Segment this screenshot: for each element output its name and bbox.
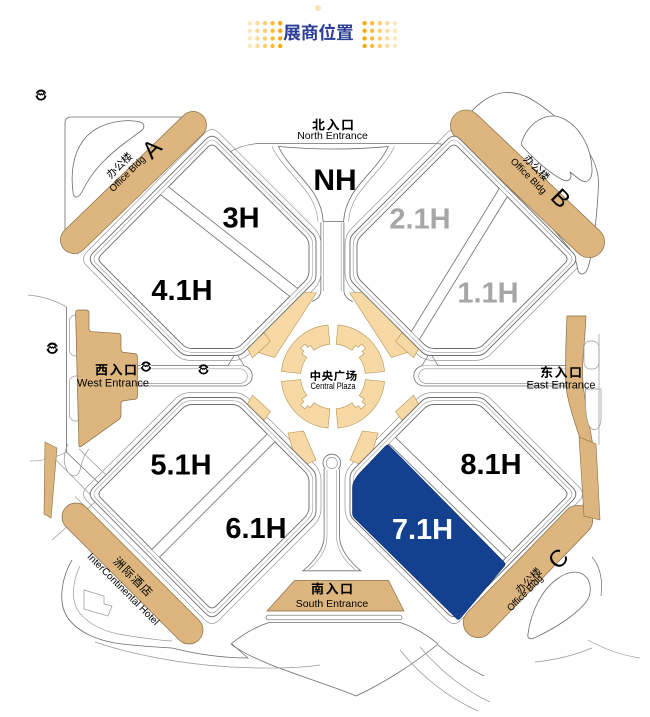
svg-text:8.1H: 8.1H: [460, 449, 521, 481]
svg-text:North Entrance: North Entrance: [297, 130, 368, 142]
svg-text:South Entrance: South Entrance: [296, 598, 369, 610]
svg-text:3H: 3H: [222, 203, 259, 235]
svg-text:2.1H: 2.1H: [389, 204, 450, 236]
svg-text:1.1H: 1.1H: [457, 278, 518, 310]
svg-text:6.1H: 6.1H: [225, 513, 286, 545]
svg-text:West Entrance: West Entrance: [77, 378, 149, 390]
svg-text:Central Plaza: Central Plaza: [311, 381, 356, 391]
svg-text:4.1H: 4.1H: [151, 275, 212, 307]
svg-text:East Entrance: East Entrance: [526, 380, 595, 392]
svg-text:7.1H: 7.1H: [392, 514, 453, 546]
svg-text:NH: NH: [313, 164, 356, 197]
svg-text:5.1H: 5.1H: [150, 450, 211, 482]
